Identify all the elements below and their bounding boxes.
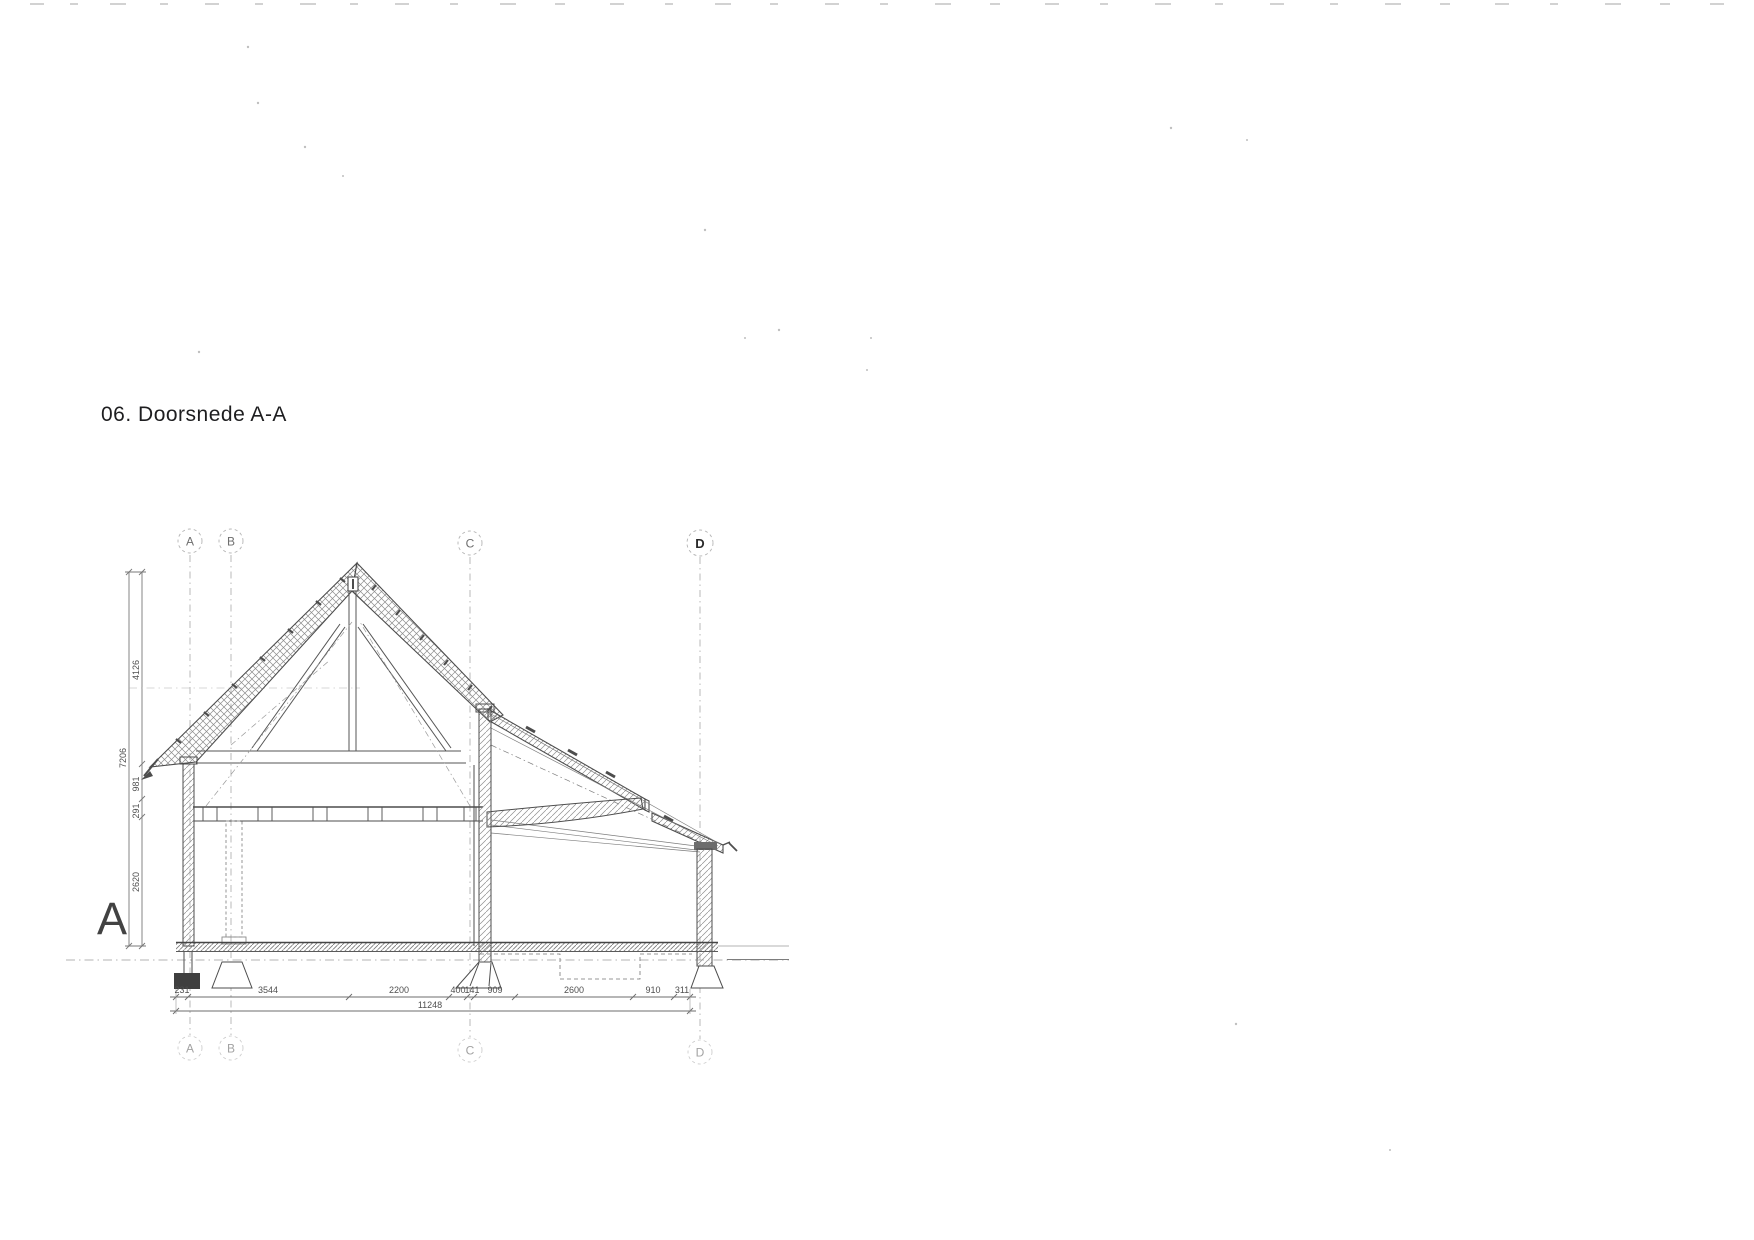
dim-311: 311 [675, 985, 689, 995]
grid-bubble-bottom-a-label: A [186, 1042, 194, 1056]
grid-bubble-top-c: C [458, 531, 482, 555]
lower-roof [487, 709, 737, 853]
wall-left [174, 757, 200, 989]
dim-3544: 3544 [258, 985, 278, 995]
dim-910: 910 [645, 985, 660, 995]
scanner-artifacts [30, 4, 1724, 1151]
grid-bubble-top-d: D [687, 530, 713, 556]
attic-floor [193, 807, 483, 821]
grid-bubble-bottom-a: A [178, 1036, 202, 1060]
grid-bubble-top-c-label: C [466, 537, 475, 551]
dim-2200: 2200 [389, 985, 409, 995]
grid-bubble-top-b-label: B [227, 535, 235, 549]
dim-vertical-981: 981 [131, 776, 141, 791]
roof-structure [141, 563, 503, 780]
grid-bubble-top-a: A [178, 529, 202, 553]
foundation [212, 954, 723, 988]
dim-400: 400 [450, 985, 465, 995]
roof-band-left [150, 563, 357, 767]
curved-beam [487, 798, 643, 827]
foundation-dashed-outline [480, 954, 692, 979]
grid-bubbles-bottom: A B C D [178, 1036, 712, 1064]
footing-d [691, 966, 723, 988]
dim-total-11248: 11248 [418, 1000, 442, 1010]
scanned-page: 06. Doorsnede A-A A [0, 0, 1754, 1240]
bottom-dimensions: 231 3544 2200 400 141 909 2600 910 311 1… [170, 985, 696, 1014]
post-line-b [222, 821, 246, 944]
grid-bubble-bottom-d: D [688, 1040, 712, 1064]
footing-b [212, 962, 252, 988]
grid-bubble-top-b: B [219, 529, 243, 553]
section-drawing: A B C D A B [0, 0, 1754, 1240]
dim-vertical-4126: 4126 [131, 660, 141, 680]
dim-231: 231 [174, 985, 189, 995]
grid-bubble-bottom-b-label: B [227, 1042, 235, 1056]
grid-bubbles-top: A B C D [178, 529, 713, 556]
grid-bubble-bottom-b: B [219, 1036, 243, 1060]
grid-bubble-bottom-c: C [458, 1038, 482, 1062]
dim-vertical-2620: 2620 [131, 872, 141, 892]
dim-vertical-291: 291 [131, 803, 141, 818]
dim-vertical-7206: 7206 [118, 748, 128, 768]
grid-bubble-bottom-c-label: C [466, 1044, 475, 1058]
wall-center [474, 704, 494, 962]
left-dimension-lines: 4126 7206 981 291 2620 [118, 569, 360, 949]
dim-2600: 2600 [564, 985, 584, 995]
grid-bubble-top-a-label: A [186, 535, 194, 549]
grid-bubble-top-d-label: D [695, 536, 704, 551]
grid-bubble-bottom-d-label: D [696, 1046, 705, 1060]
dim-141: 141 [464, 985, 479, 995]
dim-909: 909 [487, 985, 502, 995]
